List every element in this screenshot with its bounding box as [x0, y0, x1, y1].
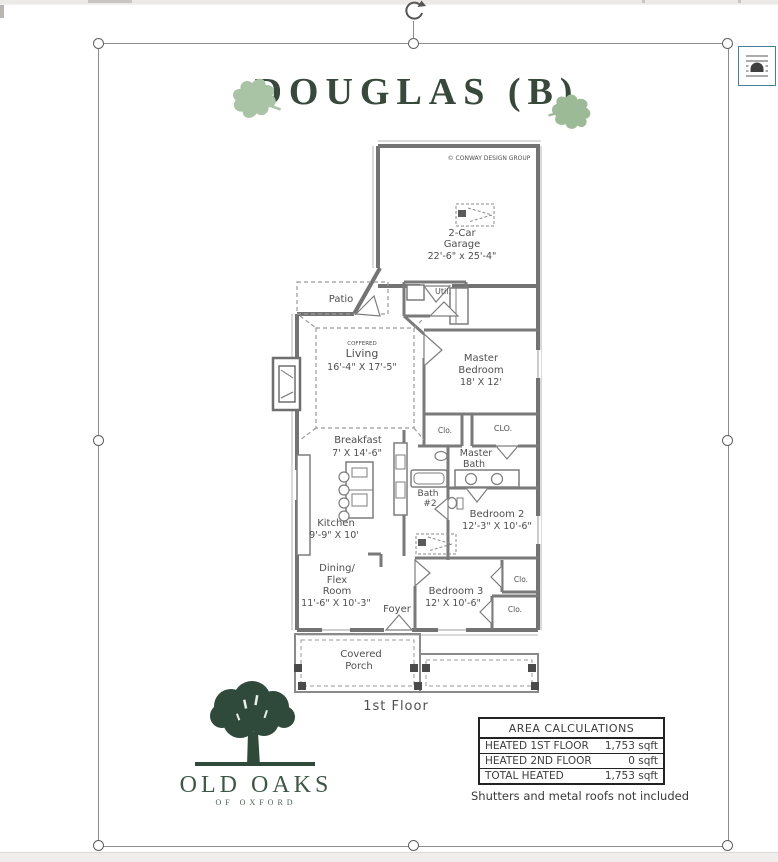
- svg-text:12'-3" X 10'-6": 12'-3" X 10'-6": [462, 521, 532, 532]
- area-table-title: AREA CALCULATIONS: [480, 719, 663, 739]
- dining-label: Dining/: [319, 563, 355, 574]
- master-bath-label: Master: [460, 448, 493, 459]
- row-label: HEATED 2ND FLOOR: [485, 755, 592, 767]
- svg-text:Room: Room: [323, 586, 351, 597]
- bedroom2-closet-label: Clo.: [514, 575, 528, 584]
- porch-label: Covered: [340, 649, 382, 660]
- svg-text:#2: #2: [423, 499, 436, 509]
- table-row: HEATED 1ST FLOOR 1,753 sqft: [480, 739, 663, 754]
- covered-porch: [294, 634, 539, 692]
- svg-text:Porch: Porch: [345, 661, 373, 672]
- util-label: Util.: [435, 287, 451, 296]
- disclaimer-note: Shutters and metal roofs not included: [440, 789, 720, 803]
- svg-text:9'-9" X 10': 9'-9" X 10': [309, 530, 359, 541]
- row-value: 0 sqft: [628, 755, 658, 767]
- logo-tagline: OF OXFORD: [156, 798, 356, 807]
- foyer-label: Foyer: [383, 604, 412, 615]
- logo-name: OLD OAKS: [156, 772, 356, 799]
- master-closet-label: CLO.: [494, 424, 512, 433]
- svg-text:Flex: Flex: [327, 575, 348, 586]
- fireplace: [273, 358, 300, 410]
- svg-text:Living: Living: [346, 347, 379, 360]
- svg-text:11'-6" X 10'-3": 11'-6" X 10'-3": [301, 598, 371, 609]
- breakfast-label: Breakfast: [334, 435, 382, 446]
- svg-text:12' X 10'-6": 12' X 10'-6": [425, 598, 481, 609]
- master-bedroom-label: Master: [464, 353, 499, 364]
- svg-text:Bath: Bath: [463, 459, 485, 470]
- attic-access-hall: [416, 534, 456, 554]
- bath2-label: Bath: [418, 489, 439, 499]
- svg-text:18' X 12': 18' X 12': [460, 377, 502, 388]
- area-calculations-table: AREA CALCULATIONS HEATED 1ST FLOOR 1,753…: [478, 717, 665, 785]
- bedroom3-closet-label: Clo.: [508, 605, 522, 614]
- svg-text:7' X 14'-6": 7' X 14'-6": [332, 448, 382, 459]
- svg-text:Garage: Garage: [444, 239, 481, 250]
- patio-label: Patio: [329, 294, 354, 305]
- kitchen-label: Kitchen: [317, 518, 355, 529]
- table-row: TOTAL HEATED 1,753 sqft: [480, 769, 663, 783]
- row-label: TOTAL HEATED: [485, 770, 564, 782]
- copyright-label: © CONWAY DESIGN GROUP: [448, 155, 531, 162]
- svg-text:Bedroom: Bedroom: [458, 365, 503, 376]
- svg-text:16'-4" X 17'-5": 16'-4" X 17'-5": [327, 362, 397, 373]
- svg-text:22'-6" x 25'-4": 22'-6" x 25'-4": [428, 251, 497, 262]
- attic-access-garage: [456, 204, 494, 226]
- floor-label: 1st Floor: [363, 699, 429, 714]
- row-label: HEATED 1ST FLOOR: [485, 740, 589, 752]
- row-value: 1,753 sqft: [605, 770, 658, 782]
- bedroom3-label: Bedroom 3: [429, 586, 484, 597]
- hall-closet-label: Clo.: [438, 426, 452, 435]
- bedroom2-label: Bedroom 2: [470, 509, 525, 520]
- garage-label: 2-Car: [448, 228, 476, 239]
- table-row: HEATED 2ND FLOOR 0 sqft: [480, 754, 663, 769]
- old-oaks-tree-logo: [195, 681, 315, 766]
- row-value: 1,753 sqft: [605, 740, 658, 752]
